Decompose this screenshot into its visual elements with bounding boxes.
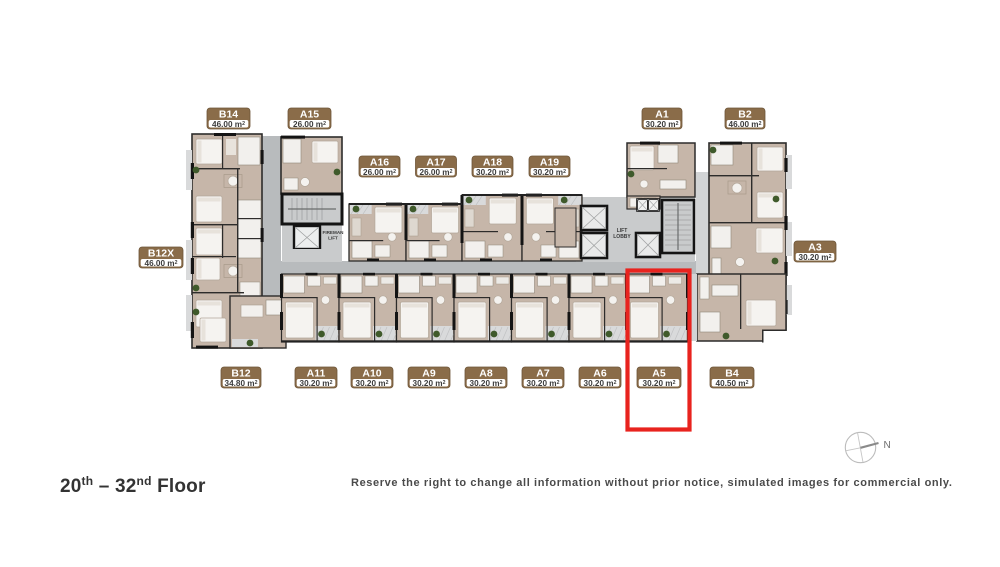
- svg-text:26.00 m2: 26.00 m2: [363, 168, 396, 177]
- svg-text:A3: A3: [808, 242, 822, 254]
- svg-text:26.00 m2: 26.00 m2: [293, 120, 326, 129]
- svg-text:30.20 m2: 30.20 m2: [470, 379, 503, 388]
- svg-text:46.00 m2: 46.00 m2: [729, 120, 762, 129]
- svg-text:30.20 m2: 30.20 m2: [643, 379, 676, 388]
- svg-text:N: N: [884, 440, 891, 451]
- svg-text:34.80 m2: 34.80 m2: [225, 379, 258, 388]
- svg-text:26.00 m2: 26.00 m2: [420, 168, 453, 177]
- svg-text:B12X: B12X: [148, 248, 174, 260]
- svg-text:A15: A15: [300, 109, 319, 121]
- svg-text:A7: A7: [536, 368, 550, 380]
- svg-text:30.20 m2: 30.20 m2: [646, 120, 679, 129]
- svg-text:A18: A18: [483, 157, 502, 169]
- svg-text:30.20 m2: 30.20 m2: [413, 379, 446, 388]
- svg-text:A6: A6: [593, 368, 607, 380]
- svg-text:30.20 m2: 30.20 m2: [533, 168, 566, 177]
- svg-text:B4: B4: [725, 368, 739, 380]
- svg-text:A19: A19: [540, 157, 559, 169]
- svg-text:30.20 m2: 30.20 m2: [584, 379, 617, 388]
- svg-text:46.00 m2: 46.00 m2: [145, 259, 178, 268]
- svg-text:A11: A11: [307, 368, 326, 380]
- svg-text:A10: A10: [362, 368, 381, 380]
- svg-text:Reserve the right to change al: Reserve the right to change all informat…: [351, 477, 953, 489]
- svg-text:B14: B14: [219, 109, 238, 121]
- svg-text:A9: A9: [422, 368, 436, 380]
- svg-text:A1: A1: [655, 109, 669, 121]
- svg-text:FIREMAN: FIREMAN: [323, 230, 345, 235]
- svg-text:A17: A17: [426, 157, 445, 169]
- svg-text:30.20 m2: 30.20 m2: [527, 379, 560, 388]
- svg-text:30.20 m2: 30.20 m2: [476, 168, 509, 177]
- svg-text:30.20 m2: 30.20 m2: [799, 253, 832, 262]
- svg-text:LIFT: LIFT: [328, 236, 338, 241]
- svg-text:A8: A8: [479, 368, 493, 380]
- svg-text:30.20 m2: 30.20 m2: [300, 379, 333, 388]
- svg-text:40.50 m2: 40.50 m2: [716, 379, 749, 388]
- svg-text:B2: B2: [738, 109, 752, 121]
- svg-text:A5: A5: [652, 368, 666, 380]
- svg-text:B12: B12: [231, 368, 250, 380]
- svg-text:46.00 m2: 46.00 m2: [212, 120, 245, 129]
- svg-text:30.20 m2: 30.20 m2: [356, 379, 389, 388]
- svg-text:A16: A16: [370, 157, 389, 169]
- svg-text:LOBBY: LOBBY: [613, 234, 631, 240]
